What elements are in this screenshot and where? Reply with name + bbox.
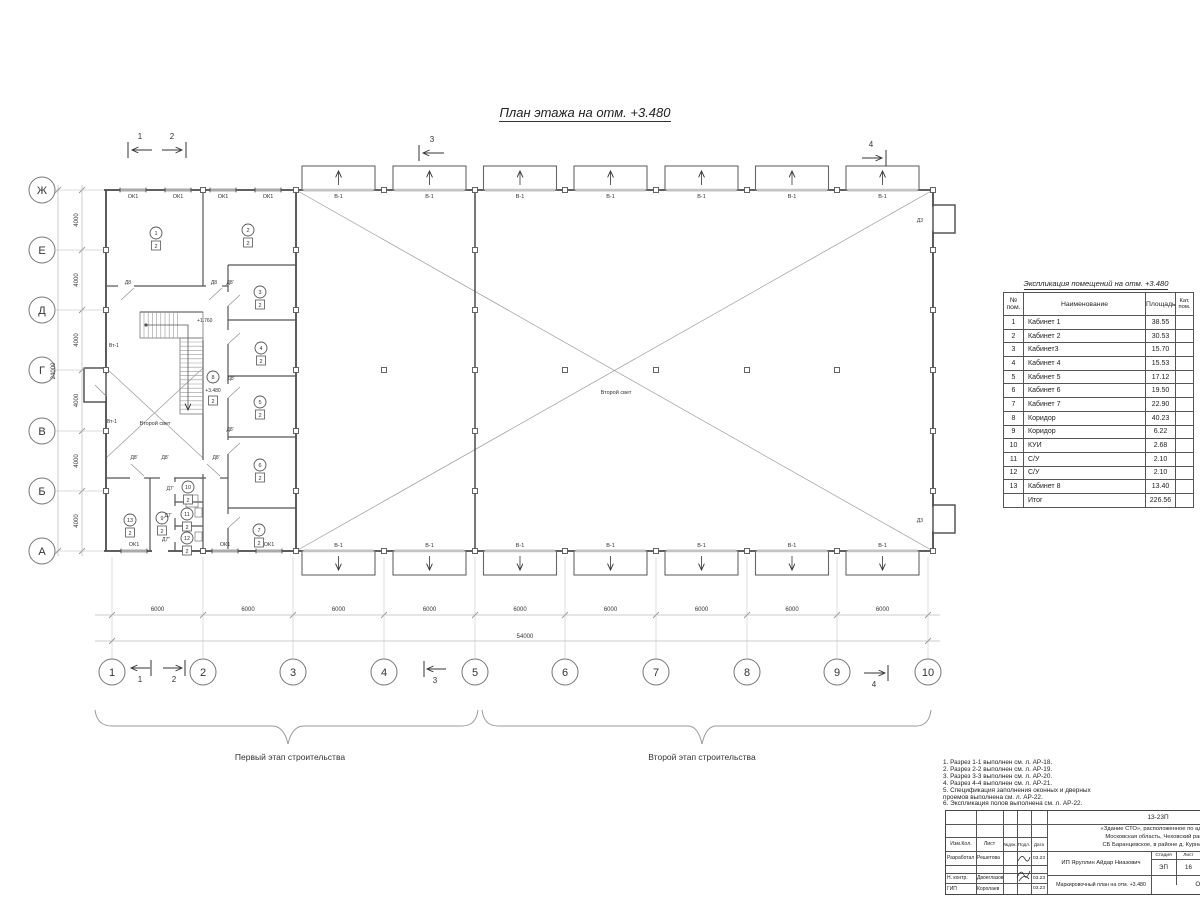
room-category: 2 [246,241,249,247]
window-gap [120,188,146,192]
column [294,429,299,434]
column [473,429,478,434]
room-area: 17.12 [1146,370,1176,384]
schedule-row: Итог226.56 [1004,493,1194,507]
room-name: Кабинет 5 [1024,370,1146,384]
window-label: ОК1 [218,194,229,200]
col-header-cat: Кат. пом. [1176,293,1194,316]
column [294,549,299,554]
col-header-num: № пом. [1004,293,1024,316]
room-tags: 122232425262728+3.480292102112122132 [124,224,267,555]
room-cat [1176,398,1194,412]
door-swing [228,333,240,344]
room-category: 2 [258,413,261,419]
dim-label-6000: 6000 [785,607,799,613]
col-header-name: Наименование [1024,293,1146,316]
grid-bubble-col-label: 9 [834,667,840,679]
column [563,368,568,373]
room-area: 2.68 [1146,439,1176,453]
schedule-row: 11С/У2.10 [1004,452,1194,466]
room-cat [1176,316,1194,330]
column [654,368,659,373]
tb-role-ncontr: Н. контр. [947,873,976,883]
gate-label-top: В-1 [788,194,797,200]
room-cat [1176,343,1194,357]
room-area: 15.53 [1146,357,1176,371]
gate-label-top: В-1 [425,194,434,200]
stage-braces: Первый этап строительства Второй этап ст… [95,710,931,762]
room-number: 3 [258,290,261,296]
room-name: С/У [1024,452,1146,466]
gate-label-bottom: В-1 [606,543,615,549]
room-number: 2 [246,228,249,234]
tb-sheet-value: 16 [1176,859,1200,875]
door-label: Д3 [917,218,923,224]
room-num: 11 [1004,452,1024,466]
section-number: 3 [433,676,438,685]
room-num [1004,493,1024,507]
column [835,549,840,554]
address-line: «Здание СТО», расположенное по адресу: [1047,825,1200,833]
room-num: 7 [1004,398,1024,412]
room-num: 13 [1004,480,1024,494]
room-name: Кабинет 7 [1024,398,1146,412]
grid-bubble-row-label: Б [38,486,45,498]
room-number: 1 [154,231,157,237]
room-area: 22.90 [1146,398,1176,412]
project-address: «Здание СТО», расположенное по адресу:Мо… [1047,825,1200,851]
column [473,489,478,494]
misc-labels: Второй светВторой свет [140,389,632,427]
door-swing [228,387,240,398]
door-swing [207,464,220,476]
door-label: Д8' [212,455,219,461]
door-label: Д8' [226,280,233,286]
tb-role-gip: ГИП [947,883,976,894]
tb-company: ООО "Аль [1151,875,1200,894]
schedule-row: 12С/У2.10 [1004,466,1194,480]
tb-stage-label: Стадия [1151,851,1176,859]
grid-bubble-col-label: 6 [562,667,568,679]
address-line: Московская область, Чеховский район, [1047,833,1200,841]
column [931,188,936,193]
column [931,489,936,494]
window-gap [255,188,281,192]
room-number: 4 [259,346,262,352]
gate-label-bottom: В-1 [878,543,887,549]
door-label: Д8' [227,376,234,382]
column [294,308,299,313]
column [382,549,387,554]
room-name: Коридор [1024,411,1146,425]
column [382,188,387,193]
tb-drawing-title: Маркировочный план на отм. +3.480 [1047,875,1155,894]
column [745,549,750,554]
section-number: 4 [869,140,874,149]
gate-label-bottom: В-1 [516,543,525,549]
room-num: 10 [1004,439,1024,453]
room-name: КУИ [1024,439,1146,453]
dim-label-6000: 6000 [513,607,527,613]
dim-label-6000: 6000 [604,607,618,613]
room-cat [1176,452,1194,466]
window-gap [165,188,191,192]
schedule-row: 1Кабинет 138.55 [1004,316,1194,330]
floor-level-label: +3.480 [205,388,221,394]
grid-bubble-row-label: Е [38,245,45,257]
room-num: 6 [1004,384,1024,398]
column [473,188,478,193]
tb-sheet-label: Лист [1176,851,1200,859]
room-cat [1176,466,1194,480]
dim-label-24000: 24000 [51,362,57,379]
tb-col-list: Лист [976,837,1003,851]
schedule-row: 13Кабинет 813.40 [1004,480,1194,494]
door-label: Д7'' [162,537,170,543]
dim-label-6000: 6000 [423,607,437,613]
tb-col-izm: Изм.Кол. [946,837,976,851]
grid-bubble-row-label: А [38,546,46,558]
grid-bubble-row-label: Ж [37,185,47,197]
room-num: 1 [1004,316,1024,330]
stage1-brace [95,710,478,744]
room-name: Кабинет 4 [1024,357,1146,371]
room-num: 9 [1004,425,1024,439]
tb-client: ИП Яруллин Айдар Ниазович [1047,851,1155,875]
dim-label-6000: 6000 [876,607,890,613]
window-gap [210,188,236,192]
tb-name-gip: Королаев [977,883,1003,894]
door-labels: Д8Д8Д8'Д8'Д8'Д8'Д8'Д8'Д7'Д7'Д7''Д3Д3Вт-1… [107,218,923,543]
column [931,429,936,434]
room-cat [1176,480,1194,494]
tb-col-podl: Подл. [1017,837,1031,851]
tb-role-developer: Разработал [947,851,976,865]
room-category: 2 [185,525,188,531]
room-name: Итог [1024,493,1146,507]
exit-vestibule-east-bottom [933,505,955,533]
column [294,188,299,193]
room-category: 2 [128,531,131,537]
column [931,549,936,554]
column [563,549,568,554]
grid-bubble-col-label: 2 [200,667,206,679]
tb-date-ncontr: 03.23 [1031,873,1047,883]
window-gap [212,549,238,553]
section-number: 1 [138,675,143,684]
window-label: ОК1 [264,542,275,548]
door-label: Д8' [130,455,137,461]
gate-label-bottom: В-1 [697,543,706,549]
column [835,368,840,373]
gate-label-bottom: В-1 [425,543,434,549]
room-number: 10 [185,485,191,491]
notes-block: 1. Разрез 1-1 выполнен см. л. АР-18.2. Р… [943,760,1091,808]
room-category: 2 [258,303,261,309]
column [473,368,478,373]
door-swing [121,288,134,300]
fixture-wc-2 [195,532,202,541]
schedule-row: 4Кабинет 415.53 [1004,357,1194,371]
column [563,188,568,193]
room-category: 2 [186,498,189,504]
room-number: 7 [257,528,260,534]
window-label: ОК1 [263,194,274,200]
room-cat [1176,357,1194,371]
grid-lines [56,190,928,659]
column [931,368,936,373]
schedule-row: 10КУИ2.68 [1004,439,1194,453]
window-gap [121,549,147,553]
dim-label-4000: 4000 [74,213,80,227]
doc-number: 13-23П [1047,811,1200,824]
column [294,489,299,494]
column [931,248,936,253]
room-cat [1176,493,1194,507]
room-area: 30.53 [1146,329,1176,343]
schedule-row: 7Кабинет 722.90 [1004,398,1194,412]
schedule-row: 3Кабинет315.70 [1004,343,1194,357]
room-number: 13 [127,518,133,524]
section-number: 2 [172,675,177,684]
door-label: Д7' [166,486,173,492]
void-label-hall: Второй свет [601,389,632,396]
windows: ОК1ОК1ОК1ОК1ОК1ОК1ОК1 [120,188,282,554]
tb-stage-value: ЭП [1151,859,1176,875]
room-name: Кабинет 6 [1024,384,1146,398]
room-category: 2 [257,541,260,547]
room-schedule-table: № пом. Наименование Площадь Кат. пом. 1К… [1003,292,1194,508]
gate-label-top: В-1 [516,194,525,200]
room-area: 2.10 [1146,466,1176,480]
door-swing [228,443,240,454]
address-line: СБ Баранцевское, в районе д. Курниково [1047,841,1200,849]
room-name: Кабинет3 [1024,343,1146,357]
room-cat [1176,425,1194,439]
room-name: Кабинет 8 [1024,480,1146,494]
grid-bubble-row-label: В [38,426,45,438]
room-area: 19.50 [1146,384,1176,398]
void-label-office: Второй свет [140,420,171,427]
dim-label-54000: 54000 [517,634,534,640]
dim-label-6000: 6000 [695,607,709,613]
window-label: ОК1 [129,542,140,548]
vent-label: Вт-1 [107,419,117,425]
room-area: 2.10 [1146,452,1176,466]
gate-label-top: В-1 [606,194,615,200]
room-schedule: Экспликация помещений на отм. +3.480 № п… [1003,279,1189,508]
room-name: С/У [1024,466,1146,480]
walls [84,190,955,551]
section-number: 2 [170,132,175,141]
room-cat [1176,439,1194,453]
gate-label-top: В-1 [697,194,706,200]
tb-date-developer: 03.23 [1031,851,1047,865]
exit-vestibule-east-top [933,205,955,233]
window-gap [256,549,282,553]
room-category: 2 [185,549,188,555]
gate-label-bottom: В-1 [788,543,797,549]
dim-label-4000: 4000 [74,333,80,347]
door-swing [228,295,240,306]
schedule-row: 8Коридор40.23 [1004,411,1194,425]
dim-label-6000: 6000 [241,607,255,613]
room-number: 6 [258,463,261,469]
door-swing [131,464,144,476]
room-cat [1176,411,1194,425]
drawing-sheet: План этажа на отм. +3.480 +1.760 В-1В-1В… [0,0,1200,900]
door-label: Д3 [917,518,923,524]
dim-label-4000: 4000 [74,273,80,287]
note-line: 6. Экспликация полов выполнена см. л. АР… [943,801,1091,808]
grid-bubble-col-label: 7 [653,667,659,679]
section-number: 3 [430,135,435,144]
column [201,188,206,193]
grid-bubble-row-label: Г [39,365,45,377]
column [294,368,299,373]
grid-bubble-col-label: 4 [381,667,387,679]
room-num: 2 [1004,329,1024,343]
section-number: 1 [138,132,143,141]
room-num: 8 [1004,411,1024,425]
room-category: 2 [211,399,214,405]
room-cat [1176,384,1194,398]
column [104,429,109,434]
room-cat [1176,329,1194,343]
room-number: 9 [160,516,163,522]
room-cat [1176,370,1194,384]
room-name: Коридор [1024,425,1146,439]
dim-label-6000: 6000 [332,607,346,613]
dim-label-6000: 6000 [151,607,165,613]
column [201,549,206,554]
window-label: ОК1 [173,194,184,200]
stair-level-label: +1.760 [197,318,213,324]
column [745,368,750,373]
signature-strokes [1016,851,1032,885]
window-label: ОК1 [220,542,231,548]
section-number: 4 [872,680,877,689]
grid-bubble-col-label: 1 [109,667,115,679]
tb-col-ndok: №док. [1003,837,1017,851]
column [104,248,109,253]
room-category: 2 [258,476,261,482]
room-category: 2 [154,244,157,250]
door-swing [228,517,240,528]
title-block: 13-23П «Здание СТО», расположенное по ад… [945,810,1200,895]
fixture-wc-1 [195,508,202,517]
room-number: 8 [211,375,214,381]
room-name: Кабинет 2 [1024,329,1146,343]
room-number: 11 [184,512,190,518]
room-num: 5 [1004,370,1024,384]
gate-label-bottom: В-1 [334,543,343,549]
room-area: 38.55 [1146,316,1176,330]
stair-lower-flight [180,338,203,414]
col-header-area: Площадь [1146,293,1176,316]
dim-label-4000: 4000 [74,454,80,468]
room-schedule-title: Экспликация помещений на отм. +3.480 [1003,279,1189,288]
door-label: Д8 [125,280,131,286]
room-num: 3 [1004,343,1024,357]
tb-name-developer: Решетова [977,851,1003,865]
room-name: Кабинет 1 [1024,316,1146,330]
tb-date-gip: 03.23 [1031,883,1047,894]
schedule-row: 9Коридор6.22 [1004,425,1194,439]
column [104,489,109,494]
door-label: Д8' [161,455,168,461]
window-label: ОК1 [128,194,139,200]
door-label: Д8' [226,427,233,433]
room-num: 12 [1004,466,1024,480]
staircase: +1.760 [140,312,213,414]
room-area: 226.56 [1146,493,1176,507]
room-category: 2 [259,359,262,365]
stage2-label: Второй этап строительства [648,752,756,762]
column [654,549,659,554]
vent-label: Вт-1 [109,343,119,349]
gate-label-top: В-1 [334,194,343,200]
column [473,248,478,253]
tb-name-ncontr: Двоеглазов [977,873,1003,883]
dim-label-4000: 4000 [74,393,80,407]
room-category: 2 [160,529,163,535]
grid-bubble-col-label: 3 [290,667,296,679]
room-number: 12 [184,536,190,542]
door-label: Д8 [211,280,217,286]
room-area: 13.40 [1146,480,1176,494]
door-label: Д7' [164,513,171,519]
schedule-row: 5Кабинет 517.12 [1004,370,1194,384]
room-area: 6.22 [1146,425,1176,439]
column [104,368,109,373]
axis-bubbles-dimensions: 1600026000360004600056000660007600086000… [29,177,941,685]
gate-label-top: В-1 [878,194,887,200]
schedule-row: 6Кабинет 619.50 [1004,384,1194,398]
room-area: 40.23 [1146,411,1176,425]
column [835,188,840,193]
tb-col-data: Дата [1031,837,1047,851]
door-swing [209,288,222,300]
column [745,188,750,193]
column [294,248,299,253]
schedule-row: 2Кабинет 230.53 [1004,329,1194,343]
grid-bubble-col-label: 8 [744,667,750,679]
gate-bays: В-1В-1В-1В-1В-1В-1В-1В-1В-1В-1В-1В-1В-1В… [302,166,919,575]
room-area: 15.70 [1146,343,1176,357]
column [382,368,387,373]
dim-label-4000: 4000 [74,514,80,528]
stage2-brace [482,710,931,744]
column [104,308,109,313]
stage1-label: Первый этап строительства [235,752,345,762]
grid-bubble-row-label: Д [38,305,46,317]
room-num: 4 [1004,357,1024,371]
grid-bubble-col-label: 10 [922,667,934,679]
column [473,308,478,313]
column [931,308,936,313]
section-marks: 12341234 [128,132,888,689]
room-number: 5 [258,400,261,406]
void-cross-lines [106,190,933,551]
grid-bubble-col-label: 5 [472,667,478,679]
column [654,188,659,193]
column [473,549,478,554]
